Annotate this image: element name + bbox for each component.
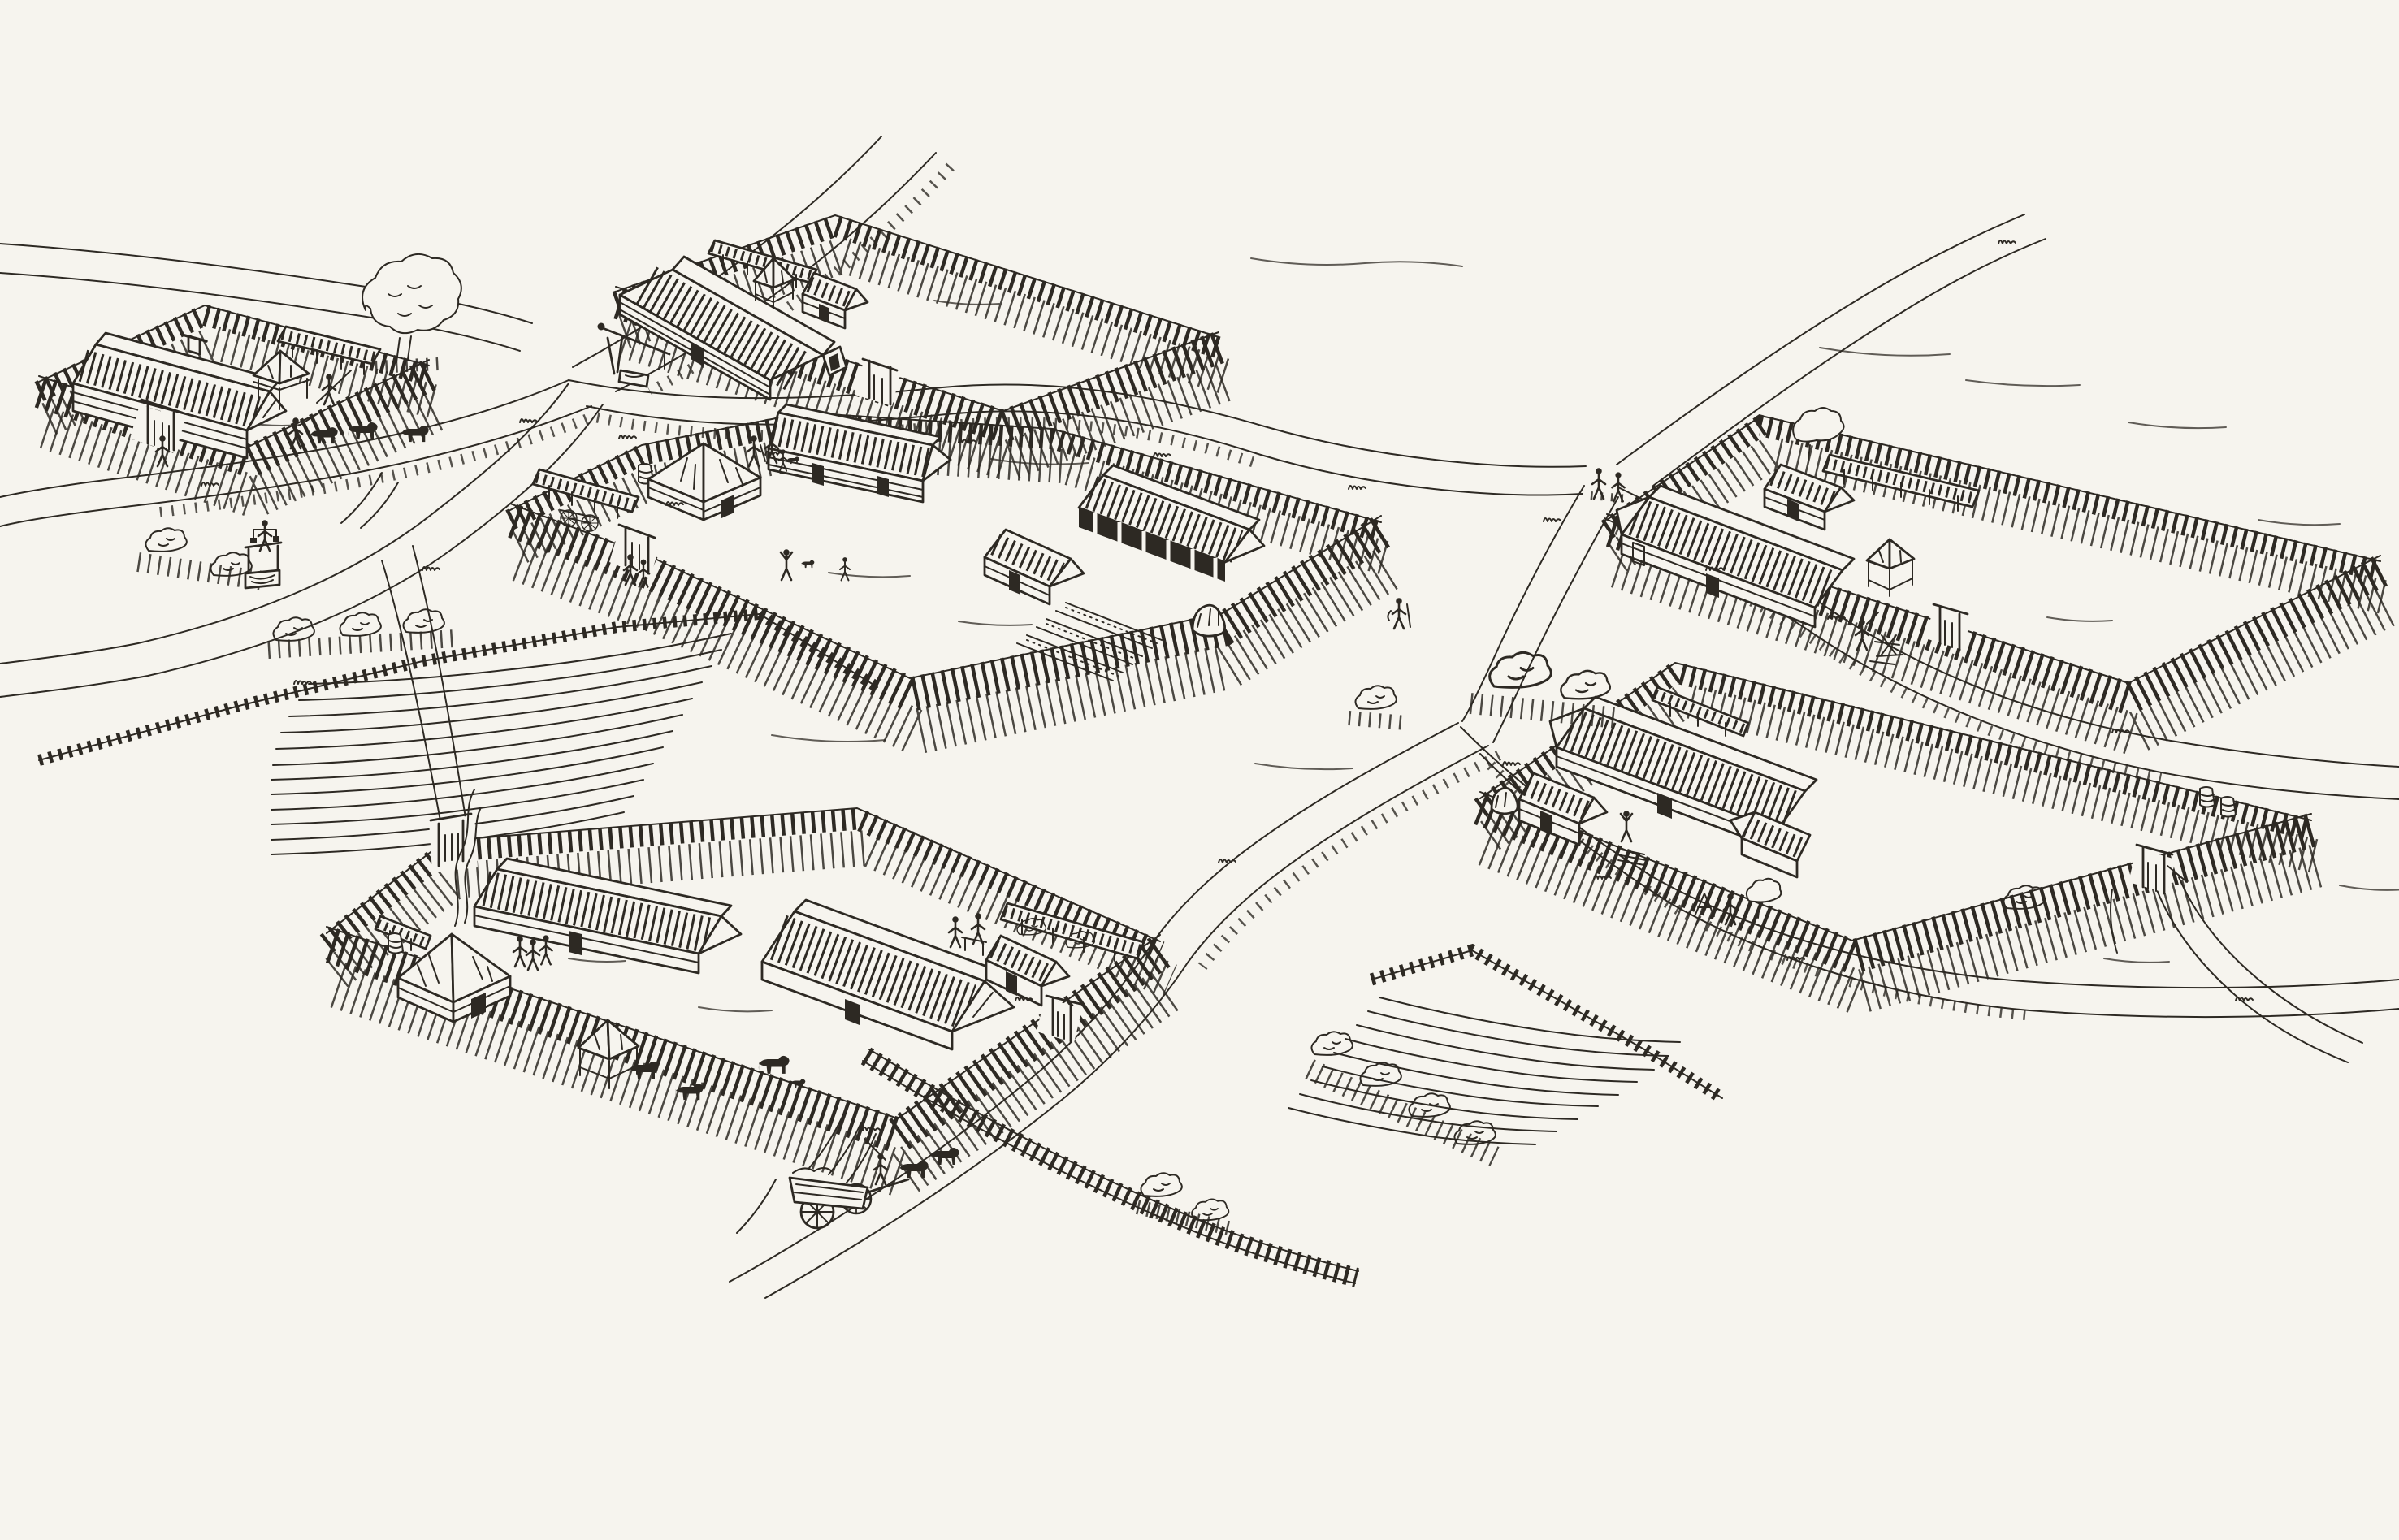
door xyxy=(812,463,824,486)
village-illustration: Aerial pen-and-ink reconstruction drawin… xyxy=(0,0,2399,1540)
barrel-F xyxy=(388,933,403,954)
north-gate-F xyxy=(429,814,478,872)
paper-background xyxy=(0,0,2399,1540)
illustration-page: Aerial pen-and-ink reconstruction drawin… xyxy=(0,0,2399,1540)
haystack-E xyxy=(1492,788,1518,814)
door xyxy=(569,931,582,955)
door xyxy=(877,476,889,497)
